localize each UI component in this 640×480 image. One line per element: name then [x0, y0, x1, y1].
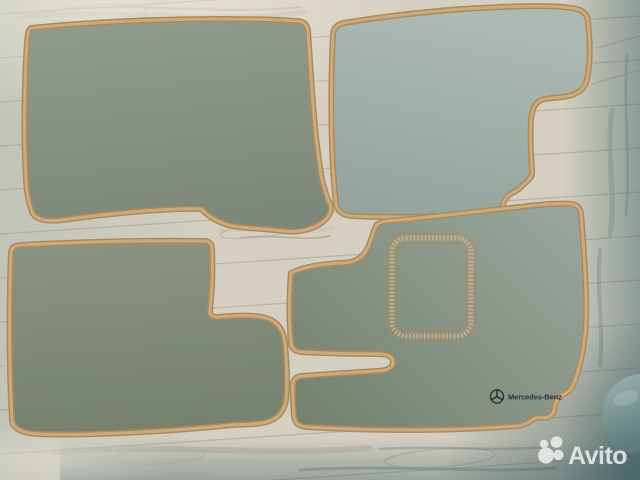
avito-text: Avito: [568, 442, 627, 470]
mercedes-text: Mercedes-Benz: [508, 393, 562, 402]
photo-canvas: Mercedes-Benz Avito: [0, 0, 640, 480]
mat-top-left: [24, 19, 330, 232]
mat-top-left-shape: [24, 19, 330, 232]
